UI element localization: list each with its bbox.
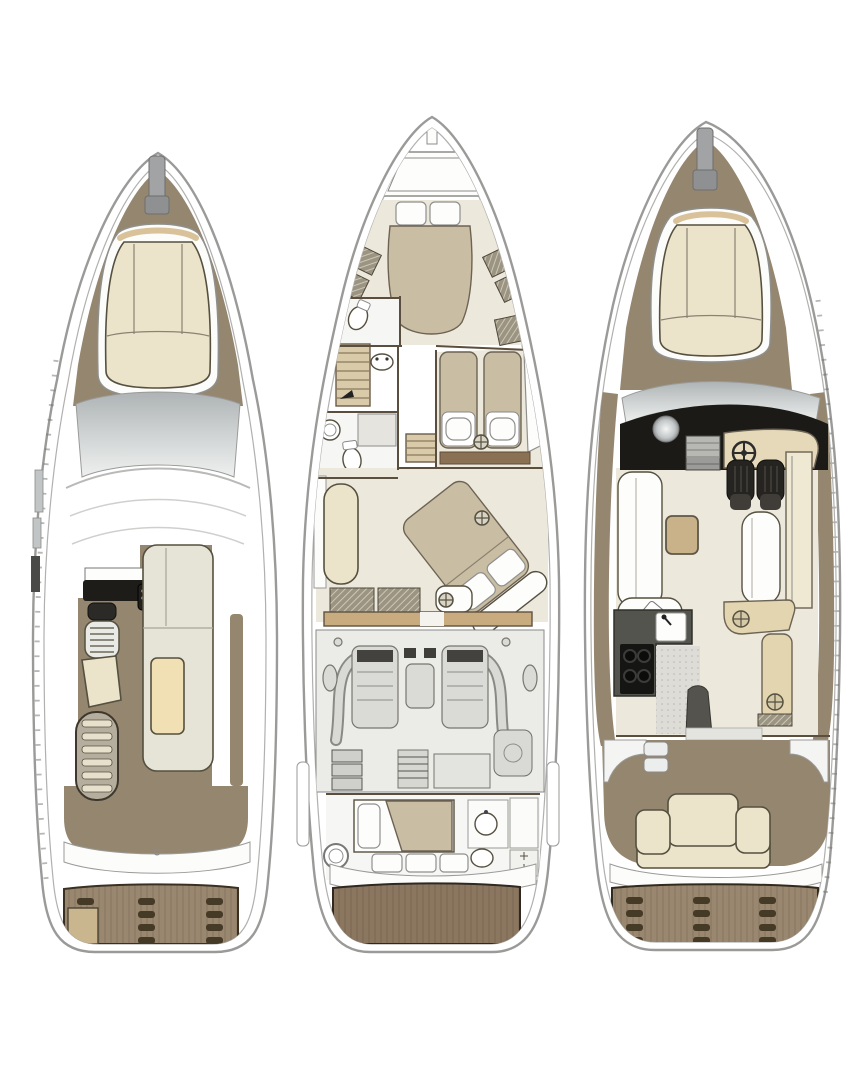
swim-platform bbox=[333, 883, 520, 944]
sideboard bbox=[786, 452, 812, 608]
companionway-steps bbox=[406, 434, 436, 462]
tank bbox=[434, 754, 490, 788]
lower-interior bbox=[314, 126, 552, 944]
manifold bbox=[406, 664, 434, 708]
drawer bbox=[406, 854, 436, 872]
windshield-glass bbox=[76, 392, 240, 477]
flybridge-deck bbox=[31, 153, 277, 952]
sink bbox=[371, 354, 393, 370]
wet-bar-grill bbox=[85, 621, 119, 658]
deck-fitting bbox=[475, 511, 489, 525]
cockpit-step bbox=[644, 758, 668, 772]
crew-cabin bbox=[324, 794, 540, 880]
bow-sunpad bbox=[651, 208, 771, 362]
cockpit-step bbox=[644, 742, 668, 756]
companionway-stairs bbox=[686, 436, 720, 470]
bow-pulpit bbox=[145, 156, 169, 214]
sunpad-cushion bbox=[106, 242, 211, 388]
engine-part bbox=[404, 648, 416, 658]
porthole bbox=[324, 844, 348, 868]
galley-sink bbox=[656, 613, 686, 641]
lower-deck bbox=[297, 117, 559, 952]
batteries bbox=[332, 750, 362, 790]
hull-window bbox=[35, 470, 43, 512]
stairs-to-cockpit bbox=[76, 712, 118, 800]
hull-window bbox=[33, 518, 41, 548]
side-walkway bbox=[230, 614, 243, 786]
salon-bench bbox=[742, 512, 780, 604]
deck-plans-svg bbox=[0, 0, 851, 1080]
sliding-door bbox=[686, 728, 762, 740]
drawer bbox=[440, 854, 468, 872]
drawer bbox=[372, 854, 402, 872]
swim-platform bbox=[612, 884, 818, 944]
stairs-down bbox=[686, 686, 712, 734]
crew-cabinet bbox=[510, 798, 538, 848]
anchor-base bbox=[693, 170, 717, 190]
bench-arm bbox=[736, 807, 770, 853]
stove bbox=[620, 644, 654, 694]
engine-part bbox=[424, 648, 436, 658]
flybridge-table bbox=[151, 658, 184, 734]
chaise-bench bbox=[324, 484, 358, 584]
thru-hull bbox=[523, 665, 537, 691]
pillow bbox=[446, 418, 471, 440]
foredeck-hatch bbox=[653, 416, 679, 442]
starboard-engine bbox=[442, 646, 488, 728]
table-mount bbox=[767, 694, 783, 710]
coffee-table bbox=[666, 516, 698, 554]
bow-pulpit bbox=[693, 128, 717, 190]
pillow bbox=[358, 804, 380, 848]
deck-fitting bbox=[474, 435, 488, 449]
helm-seat bbox=[88, 603, 116, 620]
shelf bbox=[440, 452, 530, 464]
helm-seat bbox=[757, 460, 784, 510]
boarding-gate bbox=[31, 556, 40, 592]
table-mount bbox=[733, 611, 749, 627]
sunpad-cushion bbox=[660, 225, 763, 356]
bench-back bbox=[668, 794, 738, 846]
pillow bbox=[490, 418, 515, 440]
anchor-base bbox=[145, 196, 169, 214]
twin-bed bbox=[484, 352, 521, 448]
port-stairs bbox=[336, 344, 370, 406]
thru-hull bbox=[323, 665, 337, 691]
twin-bed bbox=[440, 352, 477, 448]
bow-sunpad bbox=[98, 224, 219, 397]
shower bbox=[358, 414, 396, 446]
bench-arm bbox=[636, 810, 670, 854]
cockpit bbox=[602, 740, 830, 868]
port-engine bbox=[352, 646, 398, 728]
sun-lounger-cushion bbox=[82, 656, 121, 707]
vip-pillow bbox=[430, 202, 460, 225]
locker-vent bbox=[758, 714, 792, 726]
shelf-gap bbox=[420, 612, 444, 626]
sink bbox=[475, 813, 497, 835]
yacht-floorplan-canvas bbox=[0, 0, 851, 1080]
deck-fitting bbox=[439, 593, 453, 607]
toilet bbox=[471, 849, 493, 867]
instrument-panel bbox=[85, 568, 151, 581]
engine-room bbox=[316, 612, 544, 792]
trim-tab bbox=[297, 762, 309, 846]
generator bbox=[494, 730, 532, 776]
helm-seat bbox=[727, 460, 754, 510]
trim-tab bbox=[547, 762, 559, 846]
vip-pillow bbox=[396, 202, 426, 225]
engine-ladder bbox=[398, 750, 428, 788]
swim-platform bbox=[64, 884, 238, 944]
windshield bbox=[76, 392, 240, 477]
main-deck bbox=[585, 122, 840, 950]
